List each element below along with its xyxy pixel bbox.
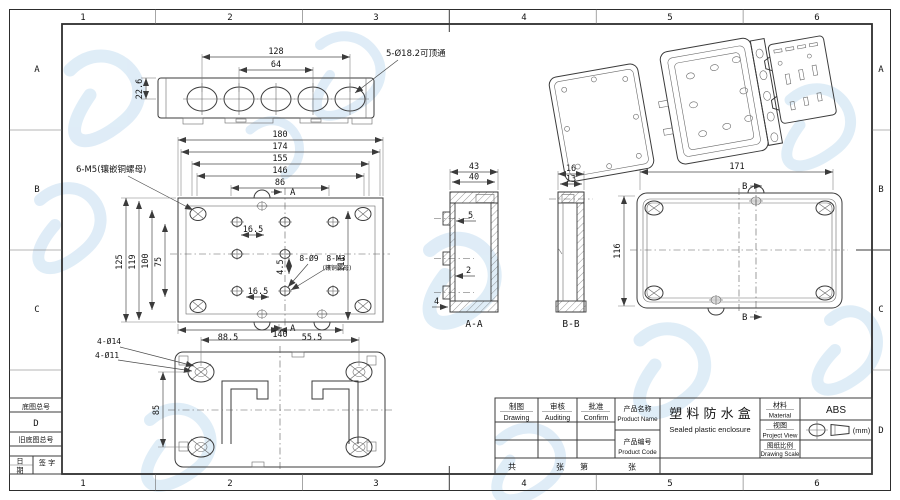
material-label-cn: 材料: [773, 401, 787, 410]
drawing-sheet: 1 2 3 4 5 6 1 2 3 4 5 6 A B C A B C D 底图…: [0, 0, 900, 500]
view-label-en: Project View: [763, 433, 798, 440]
svg-text:146: 146: [272, 166, 287, 176]
top-grid-ticks: [156, 10, 744, 33]
view-section-bb: 16 13 B-B: [549, 164, 593, 330]
view-top-strip: 128 64 22.6 5-Ø18.2可顶通: [135, 47, 446, 124]
svg-text:6-M5(镶嵌铜螺母): 6-M5(镶嵌铜螺母): [76, 164, 146, 175]
product-code-label-en: Product Code: [618, 449, 657, 456]
grid-col-3-bottom: 3: [373, 479, 378, 489]
signature-label: 签 字: [39, 458, 55, 467]
svg-text:55.5: 55.5: [302, 333, 322, 343]
svg-text:100: 100: [141, 253, 151, 268]
svg-text:16: 16: [566, 164, 576, 174]
drawing-label-en: Drawing: [504, 415, 530, 422]
units-label: (mm): [853, 426, 871, 435]
grid-row-a-right: A: [878, 65, 884, 75]
old-base-no-label: 旧底图总号: [19, 435, 54, 444]
product-name-label-cn: 产品名称: [624, 404, 652, 413]
svg-text:64: 64: [271, 60, 281, 70]
drawing-canvas: 1 2 3 4 5 6 1 2 3 4 5 6 A B C A B C D 底图…: [0, 0, 900, 500]
svg-text:125: 125: [115, 254, 125, 269]
svg-text:140: 140: [272, 330, 287, 340]
watermark: [38, 36, 877, 499]
svg-text:75: 75: [154, 257, 164, 267]
sheet-no-suffix: 张: [628, 463, 636, 472]
svg-text:8-Ø9: 8-Ø9: [299, 253, 318, 263]
grid-col-4-top: 4: [521, 13, 526, 23]
dim-4-5: 4.5: [276, 258, 289, 275]
svg-text:B: B: [742, 182, 747, 192]
bottom-grid-ticks: [156, 466, 744, 491]
dim-2: 2: [455, 266, 475, 276]
svg-text:180: 180: [272, 130, 287, 140]
product-name-label-en: Product Name: [617, 416, 658, 423]
lid-edge-notches: [708, 186, 764, 315]
scale-label-cn: 图纸比例: [767, 441, 793, 450]
base-no-label: 底图总号: [22, 402, 50, 411]
date-label-top: 日: [17, 458, 24, 466]
svg-text:5: 5: [468, 211, 473, 221]
view-back-plan: 140 85 4-Ø14 4-Ø11: [95, 330, 392, 472]
grid-col-1-top: 1: [80, 13, 85, 23]
grid-col-2-bottom: 2: [227, 479, 232, 489]
hole-callout-18-2: 5-Ø18.2可顶通: [355, 48, 446, 93]
svg-text:119: 119: [128, 254, 138, 269]
svg-text:85: 85: [152, 405, 162, 415]
svg-text:16.5: 16.5: [248, 287, 268, 297]
drawing-label-cn: 制图: [509, 401, 524, 411]
sheet-total-prefix: 共: [508, 463, 516, 472]
view-label-cn: 视图: [773, 421, 787, 430]
view-lid-plan: B B 171 116: [613, 162, 848, 323]
material-value: ABS: [826, 405, 846, 416]
section-label-bb: B-B: [562, 319, 579, 330]
dim-86: 86: [231, 178, 329, 196]
grid-col-5-top: 5: [667, 13, 672, 23]
svg-text:8-M3: 8-M3: [326, 254, 345, 263]
svg-text:116: 116: [613, 243, 623, 258]
dim-22-6: 22.6: [135, 78, 156, 99]
dim-119: 119: [128, 201, 139, 320]
dim-75: 75: [154, 224, 165, 297]
svg-text:4-Ø11: 4-Ø11: [95, 350, 119, 360]
callout-8-holes: 8-Ø9 8-M3 (镶铜螺母): [288, 253, 351, 290]
grid-row-b-left: B: [34, 185, 39, 195]
svg-text:4: 4: [434, 297, 439, 307]
dim-13: 13: [560, 175, 582, 185]
svg-text:88.5: 88.5: [218, 333, 238, 343]
sheet-total-suffix: 张: [556, 463, 564, 472]
svg-text:A: A: [290, 188, 296, 198]
grid-row-a-left: A: [34, 65, 40, 75]
grid-col-4-bottom: 4: [521, 479, 526, 489]
isometric-lid: [548, 63, 655, 183]
svg-text:2: 2: [466, 266, 471, 276]
section-label-aa: A-A: [465, 319, 482, 330]
svg-text:171: 171: [729, 162, 744, 172]
material-label-en: Material: [769, 413, 791, 420]
svg-text:40: 40: [469, 173, 479, 183]
grid-row-c-right: C: [878, 305, 883, 315]
svg-text:128: 128: [268, 47, 283, 57]
svg-text:155: 155: [272, 154, 287, 164]
svg-text:4.5: 4.5: [276, 259, 286, 274]
auditing-label-en: Auditing: [545, 415, 570, 422]
isometric-body: [650, 35, 783, 167]
left-title-block: 底图总号 D 旧底图总号 日 期 签 字: [10, 398, 63, 475]
svg-text:16.5: 16.5: [243, 225, 263, 235]
grid-row-d-right: D: [878, 426, 883, 436]
svg-text:43: 43: [469, 162, 479, 172]
view-main-plan: A A 180 174 155 146 86: [76, 130, 390, 343]
grid-col-6-top: 6: [814, 13, 819, 23]
grid-row-c-left: C: [34, 305, 39, 315]
confirm-label-cn: 批准: [589, 401, 604, 411]
svg-text:174: 174: [272, 142, 287, 152]
dim-5: 5: [456, 211, 476, 221]
svg-text:B: B: [742, 313, 747, 323]
dim-100: 100: [141, 210, 152, 310]
grid-col-1-bottom: 1: [80, 479, 85, 489]
dim-16-5-upper: 16.5: [241, 225, 264, 235]
confirm-label-en: Confirm: [584, 415, 609, 422]
sheet-no-prefix: 第: [580, 462, 588, 472]
svg-text:86: 86: [275, 178, 285, 188]
lid-corner-screws: [645, 201, 834, 300]
grid-row-b-right: B: [878, 185, 883, 195]
product-code-label-cn: 产品编号: [624, 437, 652, 446]
product-name-value-cn: 塑 料 防 水 盒: [669, 406, 751, 422]
auditing-label-cn: 审核: [550, 401, 565, 411]
date-label-bottom: 期: [17, 467, 24, 475]
svg-text:A: A: [290, 324, 296, 334]
svg-text:4-Ø14: 4-Ø14: [97, 336, 121, 346]
dim-16-5-lower: 16.5: [246, 287, 269, 297]
dim-116: 116: [613, 196, 635, 306]
grid-col-5-bottom: 5: [667, 479, 672, 489]
grid-row-d-left: D: [33, 419, 38, 429]
product-name-value-en: Sealed plastic enclosure: [669, 425, 750, 434]
scale-label-en: Drawing Scale: [761, 452, 800, 458]
grid-col-6-bottom: 6: [814, 479, 819, 489]
svg-text:22.6: 22.6: [135, 79, 145, 99]
grid-col-3-top: 3: [373, 13, 378, 23]
isometric-bracket: [762, 35, 837, 125]
grid-col-2-top: 2: [227, 13, 232, 23]
projection-symbol-icon: [806, 421, 849, 439]
keyhole-hooks: [222, 381, 358, 444]
svg-text:5-Ø18.2可顶通: 5-Ø18.2可顶通: [386, 48, 446, 59]
dim-40: 40: [452, 173, 495, 183]
